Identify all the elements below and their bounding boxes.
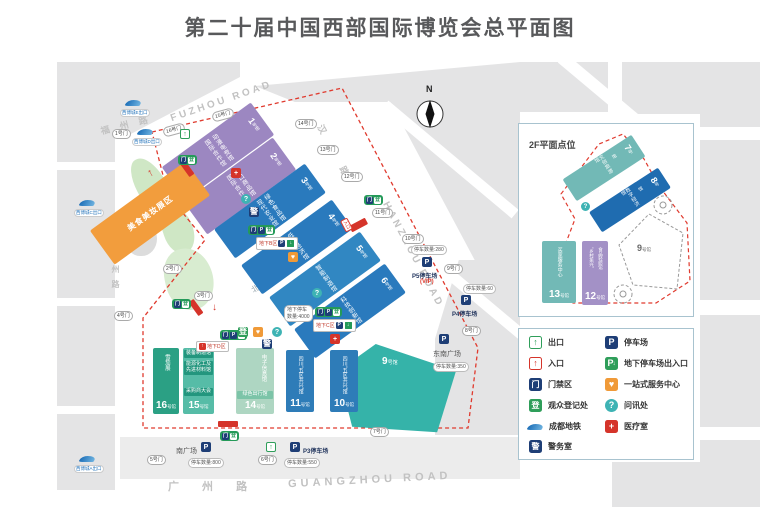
registration-icon: 登 (266, 227, 273, 234)
metro-point-e (126, 100, 141, 106)
police-point: 警 (249, 207, 259, 217)
site-plan-map: 第二十届中国西部国际博览会总平面图 福 州 路 FUZHOU ROAD 汉 州 … (0, 0, 760, 507)
p5-count: 停车数量:280 (411, 245, 447, 255)
hall-6-number: 6号馆 (377, 274, 398, 295)
compass-n-label: N (426, 84, 433, 94)
registration-icon: 登 (230, 433, 237, 440)
p4-label: P4停车场 (452, 309, 477, 318)
p4-parking: P (461, 295, 471, 305)
parking-icon: P (461, 295, 471, 305)
down-arrow-icon: ↓ (344, 321, 353, 330)
down-arrow-icon: ↓ (286, 239, 295, 248)
metro-point-d (138, 129, 153, 135)
inset-hall-13-number: 13号馆 (542, 285, 576, 301)
legend-item-gate: 门 门禁区 (529, 378, 572, 391)
legend-item-exit: ↑ 出口 (529, 336, 564, 349)
entrance-bar (218, 421, 238, 427)
gate-1: 1号门 (112, 129, 131, 139)
gate-5: 5号门 (147, 455, 166, 465)
gate-icon: 门 (222, 332, 229, 339)
p5-vip-label: (VIP) (420, 279, 434, 285)
metro-point-c (80, 200, 95, 206)
parking-icon: P (325, 309, 332, 316)
access-pill: 门 登 (364, 195, 383, 205)
hall-9-number: 9号馆 (382, 352, 398, 368)
gate-7: 7号门 (370, 427, 389, 437)
registration-icon: 登 (238, 327, 248, 337)
legend-item-underground-parking: P↓ 地下停车场出入口 (605, 357, 688, 370)
southeast-plaza-label: 东南广场 (433, 349, 461, 359)
gate-13: 13号门 (317, 145, 339, 155)
gate-9: 9号门 (444, 264, 463, 274)
south-plaza-block (120, 437, 520, 479)
access-pill: 门 登 (172, 299, 191, 309)
entrance-icon: ↑ (529, 357, 542, 370)
hall-16: 雪茄展 16号馆 (153, 348, 179, 414)
metro-icon (136, 129, 154, 135)
south-plaza-label: 南广场 (176, 446, 197, 456)
legend-item-parking: P 停车场 (605, 336, 648, 349)
inset-title: 2F平面点位 (529, 138, 576, 151)
gate-11: 11号门 (372, 208, 393, 218)
service-heart-icon: ♥ (253, 327, 263, 337)
legend-item-registration: 登 观众登记处 (529, 399, 588, 412)
inset-hall-13: 买家服务中心 13号馆 (542, 241, 576, 303)
page-title: 第二十届中国西部国际博览会总平面图 (0, 12, 760, 42)
gate-icon: 门 (366, 197, 373, 204)
inset-hall-12-number: 12号馆 (582, 287, 608, 303)
info-point: ? (272, 327, 282, 337)
hall-10-number: 10号馆 (330, 394, 358, 410)
inset-hall-8-number: 8号馆 (633, 174, 666, 201)
medical-icon: + (605, 420, 618, 433)
metro-point-a (80, 456, 95, 462)
gate-icon: 门 (317, 309, 324, 316)
police-icon: 警 (249, 207, 259, 217)
metro-icon (124, 100, 142, 106)
parking-icon: P (422, 257, 432, 267)
southeast-parking: P (439, 334, 449, 344)
underground-zone-d: ↑ 地下D区 (196, 341, 229, 352)
hall-5-number: 5号馆 (352, 242, 373, 263)
access-pill: 门 登 (220, 431, 239, 441)
city-block (700, 315, 760, 427)
metro-label-c: 西博城C出口 (74, 209, 104, 217)
info-icon: ? (581, 202, 590, 211)
parking-icon: P (439, 334, 449, 344)
gate-8: 8号门 (462, 326, 481, 336)
p3-parking: P (290, 442, 300, 452)
legend-item-police: 警 警务室 (529, 440, 572, 453)
info-icon: ? (272, 327, 282, 337)
metro-icon (526, 424, 544, 430)
service-center-point: ♥ (253, 327, 263, 337)
inset-hall-7-number: 7号馆 (606, 141, 640, 169)
hall-11-name: 四川“五区共兴”馆 (297, 356, 302, 394)
registration-icon: 登 (374, 197, 381, 204)
hall-2-number: 2号馆 (266, 149, 287, 170)
gate-icon: 门 (222, 433, 229, 440)
info-icon: ? (241, 194, 251, 204)
inset-2f-panel: 2F平面点位 文创旅游馆 7号馆 数字经济馆 8号馆 ? 买家服务中心 13号馆… (518, 123, 694, 317)
hall-3-number: 3号馆 (297, 174, 318, 195)
legend-item-medical: + 医疗室 (605, 420, 648, 433)
inset-hall-12-name: “乡村振兴” (589, 247, 594, 268)
city-block (57, 62, 115, 162)
service-center-point: ♥ (288, 252, 298, 262)
info-icon: ? (605, 399, 618, 412)
underground-parking-note: 地下停车 数量:4000 (284, 305, 313, 322)
exit-icon: ↑ (266, 442, 276, 452)
parking-icon: P (201, 442, 211, 452)
parking-icon: P (290, 442, 300, 452)
parking-icon: P (336, 322, 343, 329)
p3-count: 停车数量:550 (284, 458, 320, 468)
medical-icon: + (231, 168, 241, 178)
entrance-icon: ↑ (199, 343, 206, 350)
city-block (57, 414, 115, 490)
city-block (612, 462, 760, 507)
parking-icon: P (605, 336, 618, 349)
inset-hall-9-number: 9号馆 (637, 239, 651, 255)
access-pill: 门 登 (178, 155, 197, 165)
gate-icon: 门 (529, 378, 542, 391)
metro-icon (78, 200, 96, 206)
hall-16-name: 雪茄展 (163, 354, 169, 371)
police-point: 警 (262, 339, 272, 349)
exit-point: ↑ (266, 442, 276, 452)
metro-label-d: 西博城D出口 (132, 138, 162, 146)
metro-label-e: 西博城E出口 (120, 109, 150, 117)
inset-hall-13-name: 买家服务中心 (556, 247, 561, 277)
gate-icon: 门 (174, 301, 181, 308)
hall-14-name: 电子信息馆 (260, 354, 266, 382)
gate-3: 3号门 (194, 291, 213, 301)
registration-icon: 登 (182, 301, 189, 308)
service-heart-icon: ♥ (605, 378, 618, 391)
underground-zone-c: 地下C区 P ↓ (313, 319, 356, 332)
legend-item-info: ? 问讯处 (605, 399, 648, 412)
registration-point: 登 (238, 327, 248, 337)
entrance-bar (349, 218, 368, 233)
hall-16-number: 16号馆 (153, 396, 179, 412)
inset-info-point: ? (581, 202, 590, 211)
access-pill: 门 P 登 (315, 307, 342, 317)
parking-icon: P (258, 227, 265, 234)
parking-icon: P (278, 240, 285, 247)
hall-11: 四川“五区共兴”馆 11号馆 (286, 350, 314, 412)
underground-zone-b: 地下B区 P ↓ (256, 237, 298, 250)
south-count: 停车数量:800 (188, 458, 224, 468)
metro-label-a: 西博城A出口 (74, 465, 104, 473)
hall-15: 装备制造馆 能源化工及先进材料馆 采购商大会 15号馆 (183, 348, 214, 414)
hall-15-sub-energy: 能源化工及先进材料馆 (184, 361, 213, 375)
parking-icon: P (230, 332, 237, 339)
hall-10-name: 四川“五区共兴”馆 (341, 356, 346, 394)
legend-item-metro: 成都地铁 (528, 421, 581, 432)
gate-2: 2号门 (163, 264, 182, 274)
underground-parking-icon: P↓ (605, 357, 618, 370)
gate-icon: 门 (250, 227, 257, 234)
registration-icon: 登 (529, 399, 542, 412)
access-pill: 门 P 登 (248, 225, 275, 235)
medical-point: + (330, 334, 340, 344)
road-label-guangzhou-cn: 广 州 路 (168, 478, 257, 494)
legend-item-service-center: ♥ 一站式服务中心 (605, 378, 680, 391)
hall-10: 四川“五区共兴”馆 10号馆 (330, 350, 358, 412)
city-block (700, 62, 760, 127)
info-icon: ? (312, 288, 322, 298)
hall-14: 电子信息馆 绿色出行馆 14号馆 (236, 348, 274, 414)
registration-icon: 登 (188, 157, 195, 164)
p4-count: 停车数量:60 (463, 284, 496, 294)
gate-12: 12号门 (341, 172, 363, 182)
hall-14-sub-green-travel: 绿色出行馆 (237, 391, 273, 399)
hall-1-number: 1号馆 (244, 114, 265, 135)
city-block (700, 140, 760, 300)
info-point: ? (312, 288, 322, 298)
gate-4: 4号门 (114, 311, 133, 321)
medical-point: + (231, 168, 241, 178)
info-point: ? (241, 194, 251, 204)
service-heart-icon: ♥ (288, 252, 298, 262)
metro-icon (78, 456, 96, 462)
p5-parking: P (422, 257, 432, 267)
entrance-arrow: ↓ (212, 303, 217, 313)
exit-icon: ↑ (529, 336, 542, 349)
p3-label: P3停车场 (303, 446, 328, 455)
gate-10: 10号门 (402, 234, 424, 244)
police-icon: 警 (529, 440, 542, 453)
city-block (57, 306, 115, 406)
south-parking: P (201, 442, 211, 452)
police-icon: 警 (262, 339, 272, 349)
gate-icon: 门 (180, 157, 187, 164)
southeast-count: 停车数量:350 (433, 362, 469, 372)
hall-11-number: 11号馆 (286, 394, 314, 410)
legend-item-entrance: ↑ 入口 (529, 357, 564, 370)
inset-hall-12-name2: 食品轻纺馆 (598, 247, 603, 270)
inset-hall-12: “乡村振兴” 食品轻纺馆 12号馆 (582, 241, 608, 305)
gate-6: 6号门 (258, 455, 277, 465)
medical-icon: + (330, 334, 340, 344)
registration-icon: 登 (333, 309, 340, 316)
hall-15-number: 15号馆 (183, 396, 214, 412)
exit-point: ↑ (180, 129, 190, 139)
hall-15-sub-buyers: 采购商大会 (184, 388, 213, 396)
exit-icon: ↑ (180, 129, 190, 139)
legend-panel: ↑ 出口 ↑ 入口 门 门禁区 登 观众登记处 成都地铁 警 警务室 P 停车场… (518, 328, 694, 460)
gate-14: 14号门 (295, 119, 317, 129)
